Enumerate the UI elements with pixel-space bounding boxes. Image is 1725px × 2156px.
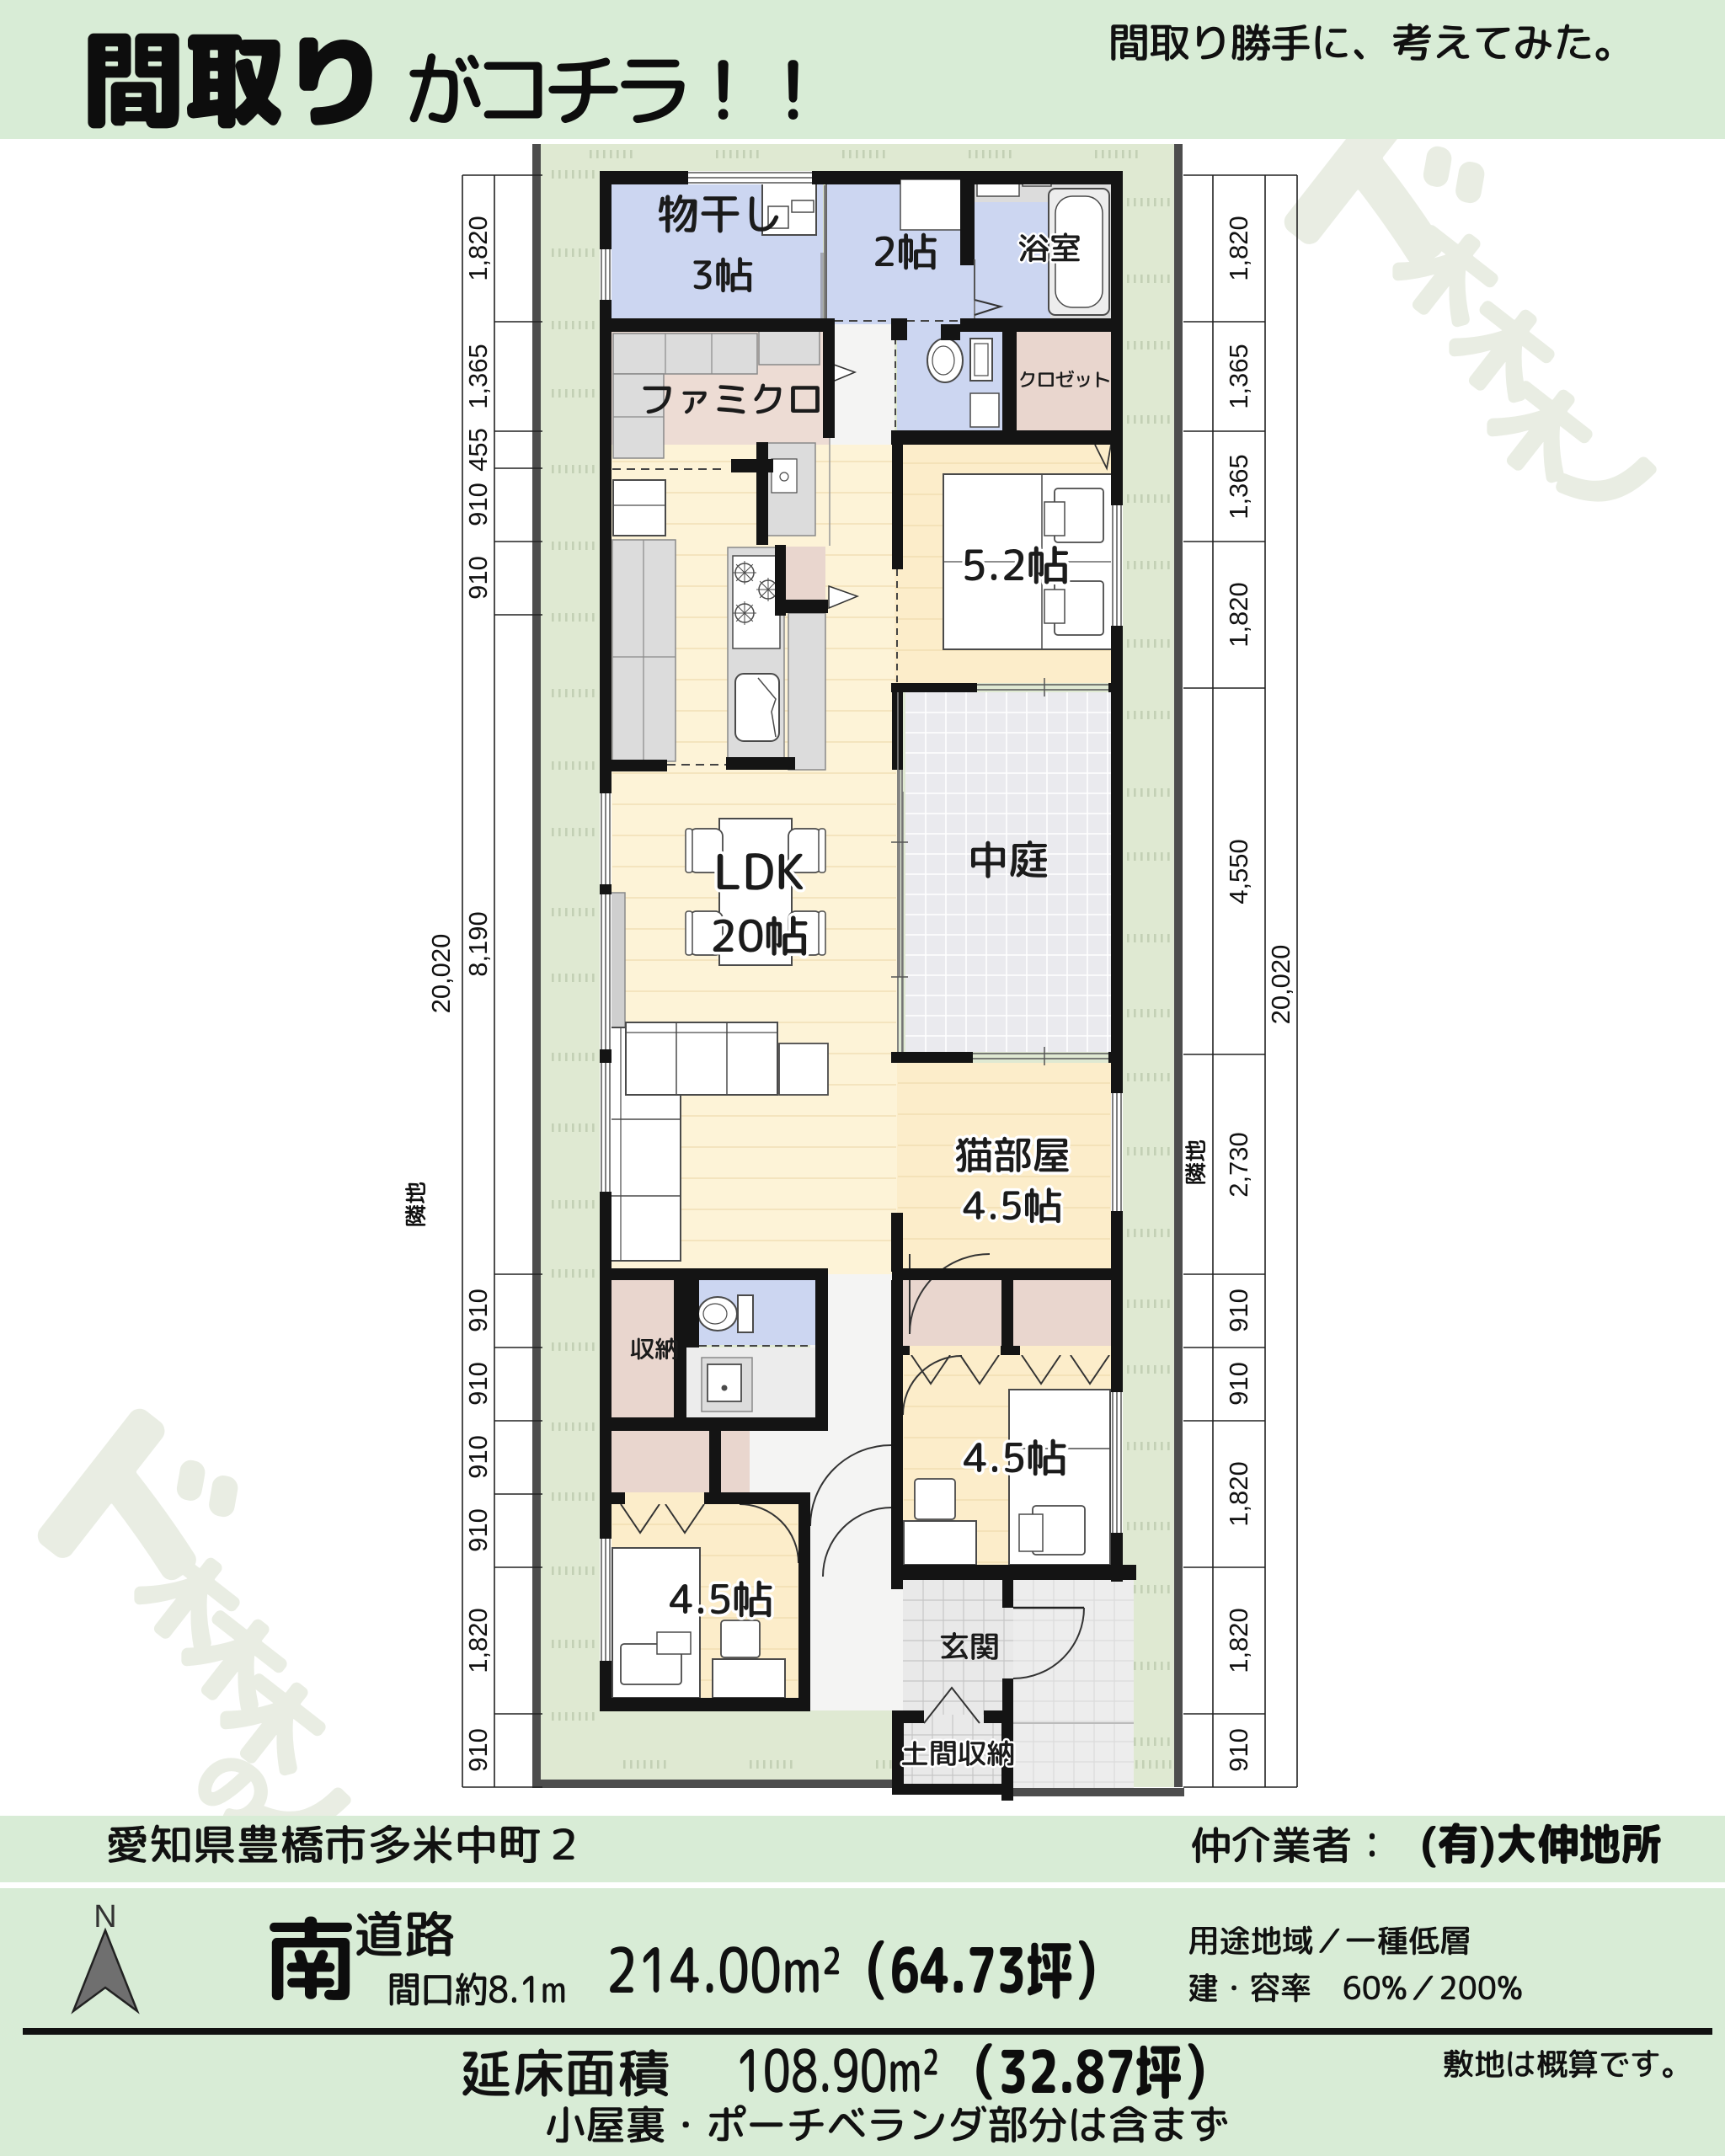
svg-text:1,820: 1,820 (1224, 1461, 1253, 1527)
svg-text:910: 910 (1224, 1362, 1253, 1406)
svg-text:910: 910 (1224, 1289, 1253, 1332)
svg-text:1,820: 1,820 (463, 216, 493, 281)
svg-text:910: 910 (463, 1362, 493, 1406)
svg-text:1,820: 1,820 (1224, 216, 1253, 281)
svg-text:4,550: 4,550 (1224, 839, 1253, 905)
svg-text:910: 910 (463, 1728, 493, 1772)
svg-text:1,365: 1,365 (463, 344, 493, 409)
svg-text:910: 910 (463, 1508, 493, 1552)
svg-text:455: 455 (463, 428, 493, 472)
svg-text:1,365: 1,365 (1224, 344, 1253, 409)
svg-text:910: 910 (1224, 1728, 1253, 1772)
svg-text:8,190: 8,190 (463, 911, 493, 977)
svg-text:910: 910 (463, 556, 493, 600)
svg-text:1,820: 1,820 (1224, 1608, 1253, 1673)
svg-text:910: 910 (463, 1435, 493, 1479)
svg-text:20,020: 20,020 (1266, 945, 1295, 1025)
svg-text:1,820: 1,820 (463, 1608, 493, 1673)
svg-text:910: 910 (463, 483, 493, 526)
svg-text:2,730: 2,730 (1224, 1132, 1253, 1198)
svg-text:20,020: 20,020 (426, 934, 456, 1014)
svg-text:1,365: 1,365 (1224, 454, 1253, 520)
svg-text:1,820: 1,820 (1224, 582, 1253, 648)
svg-text:910: 910 (463, 1289, 493, 1332)
